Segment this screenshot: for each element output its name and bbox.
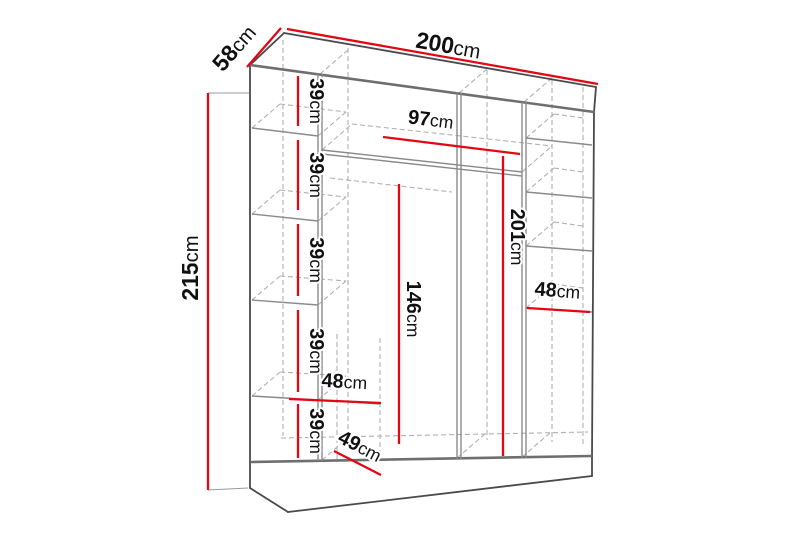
dim-label-right-height: 201cm	[506, 209, 528, 266]
dim-line-right-shelf	[527, 308, 590, 312]
dim-label-shelf-1: 39cm	[305, 78, 327, 124]
dim-label-shelf-2: 39cm	[305, 152, 327, 198]
dim-label-depth: 58cm	[207, 19, 261, 76]
dim-label-right-shelf: 48cm	[534, 278, 581, 303]
wardrobe-diagram-svg: 58cm 200cm 215cm 39cm 39cm 39cm 39cm 39c…	[0, 0, 800, 533]
dim-label-shelf-4: 39cm	[305, 328, 327, 374]
dimension-labels: 58cm 200cm 215cm 39cm 39cm 39cm 39cm 39c…	[177, 19, 581, 466]
dim-label-shelf-3: 39cm	[305, 237, 327, 283]
dim-line-center-width	[383, 137, 520, 154]
dim-label-hanging-height: 146cm	[402, 281, 424, 338]
wardrobe-diagram: 58cm 200cm 215cm 39cm 39cm 39cm 39cm 39c…	[0, 0, 800, 533]
wardrobe-structure	[208, 33, 596, 512]
dim-label-shelf-5: 39cm	[305, 408, 327, 454]
dim-line-left-shelf	[289, 399, 381, 403]
dim-label-height: 215cm	[177, 235, 203, 300]
dim-label-center-width: 97cm	[407, 106, 455, 133]
dim-label-left-shelf: 48cm	[321, 370, 368, 394]
dimension-lines	[208, 28, 598, 490]
